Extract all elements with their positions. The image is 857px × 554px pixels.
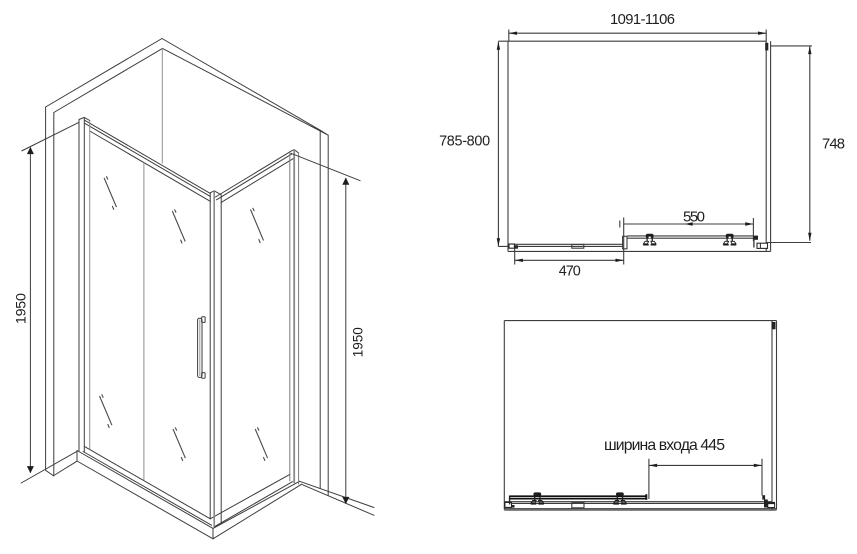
svg-text:1950: 1950 (13, 293, 29, 324)
svg-text:785-800: 785-800 (439, 134, 490, 150)
svg-text:748: 748 (822, 137, 845, 153)
svg-text:1950: 1950 (350, 327, 365, 357)
svg-text:ширина входа 445: ширина входа 445 (604, 437, 725, 454)
svg-text:550: 550 (683, 209, 705, 226)
svg-text:470: 470 (559, 264, 581, 280)
svg-text:1091-1106: 1091-1106 (610, 12, 675, 28)
